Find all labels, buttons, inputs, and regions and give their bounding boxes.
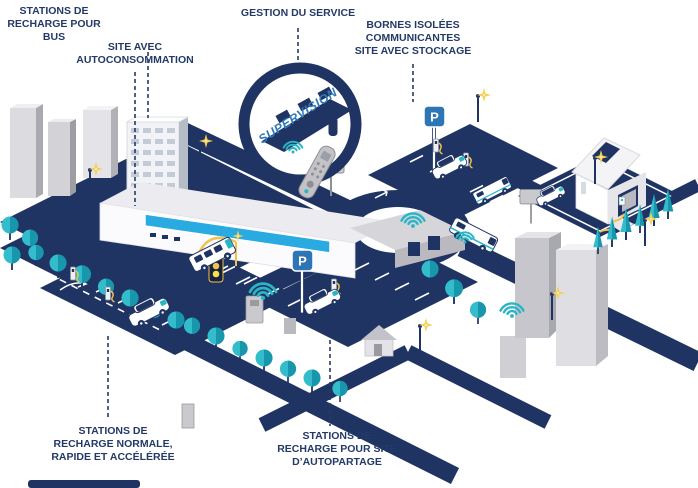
road <box>408 352 548 422</box>
street-lamp-icon <box>418 318 433 352</box>
infographic-canvas: P P <box>0 0 698 488</box>
city-illustration: P P <box>0 0 698 488</box>
label-service-management: GESTION DU SERVICE <box>236 7 360 20</box>
person-icon <box>329 108 338 136</box>
label-bus-stations: STATIONS DE RECHARGE POUR BUS <box>0 5 108 44</box>
supervision-magnifier: SUPERVISION <box>244 68 356 200</box>
signboard-icon <box>520 190 542 224</box>
label-isolated-terminals: BORNES ISOLÉES COMMUNICANTES SITE AVEC S… <box>346 19 480 58</box>
label-normal-fast-stations: STATIONS DE RECHARGE NORMALE, RAPIDE ET … <box>36 425 190 464</box>
parking-sign-letter: P <box>430 110 439 125</box>
parking-sign-letter: P <box>298 254 307 269</box>
label-carsharing-stations: STATIONS DE RECHARGE POUR SITE D’AUTOPAR… <box>260 430 414 469</box>
label-self-consumption-site: SITE AVEC AUTOCONSOMMATION <box>67 41 203 67</box>
street-lamp-icon <box>476 88 491 122</box>
road-stub <box>28 480 140 488</box>
